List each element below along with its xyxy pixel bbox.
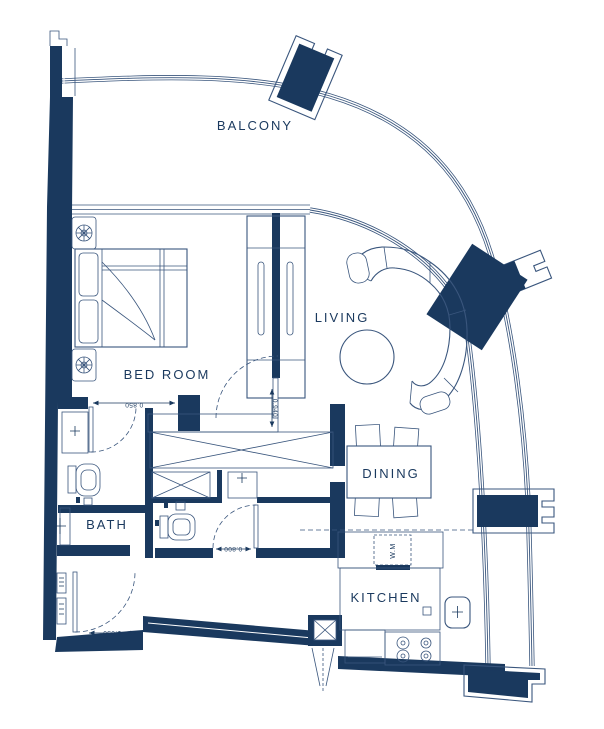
- dim-entry-door: 1.050: [103, 629, 121, 636]
- curved-sofa: [345, 247, 467, 416]
- nightstand-top: [72, 217, 96, 249]
- wardrobe-handle-right: [287, 262, 293, 335]
- bedroom-window-band: [70, 205, 310, 214]
- bedroom-door-pier: [178, 395, 200, 431]
- wardrobe-handle-left: [258, 262, 264, 335]
- ensuite-fixtures: [62, 412, 100, 505]
- entry-door: [73, 572, 135, 632]
- bedroom-furniture: [72, 217, 187, 381]
- dim-living-door: 0.940: [271, 399, 278, 417]
- kitchen-small-box: [423, 607, 431, 615]
- dim-bathroom2-door: 0.800: [224, 545, 242, 552]
- bedroom-living-divider: [272, 213, 280, 378]
- toilet-1: [68, 464, 100, 505]
- bath-fixtures: [56, 508, 70, 545]
- bathroom2-fixtures: [155, 502, 195, 540]
- nightstand-bottom: [72, 349, 96, 381]
- bed: [75, 249, 187, 347]
- left-wall-step-outline: [50, 31, 67, 46]
- tub-faucet: [56, 518, 66, 534]
- ensuite-door: [89, 407, 136, 452]
- kitchen-sink: [445, 597, 470, 628]
- wall-tags: [57, 573, 66, 624]
- coffee-table: [340, 330, 394, 384]
- dim-bedroom-entry-door: 0.850: [125, 401, 143, 408]
- corner-pier: [468, 669, 540, 698]
- living-label: LIVING: [315, 310, 370, 325]
- bedroom-label: BED ROOM: [124, 367, 211, 382]
- bedroom-bottom-wall: [58, 397, 88, 409]
- toilet-2: [155, 502, 195, 540]
- dining-label: DINING: [362, 466, 420, 481]
- plumbing-shaft: [312, 620, 336, 692]
- living-column: [426, 244, 551, 350]
- shaft: [152, 472, 210, 498]
- shower-tray-2: [228, 472, 257, 498]
- closet: [150, 432, 333, 468]
- floor-plan-canvas: BALCONY BED ROOM LIVING DINING BATH KITC…: [0, 0, 604, 729]
- labels: BALCONY BED ROOM LIVING DINING BATH KITC…: [86, 118, 421, 636]
- washing-machine-label: W.M: [390, 543, 397, 559]
- bulkhead: [148, 414, 278, 432]
- bathroom2-door: [213, 505, 258, 548]
- balcony-column: [269, 36, 342, 120]
- right-pier: [473, 489, 554, 533]
- floor-plan: BALCONY BED ROOM LIVING DINING BATH KITC…: [0, 0, 604, 729]
- corridor-storage: [148, 414, 333, 498]
- sofa-arm-bottom: [418, 390, 452, 416]
- balcony-label: BALCONY: [217, 118, 293, 133]
- bath-label: BATH: [86, 517, 128, 532]
- living-furniture: [340, 247, 467, 416]
- bathtub: [60, 508, 70, 545]
- sofa-arm-top: [345, 251, 371, 285]
- hall-bottom-wall: [143, 616, 317, 646]
- kitchen-label: KITCHEN: [350, 590, 421, 605]
